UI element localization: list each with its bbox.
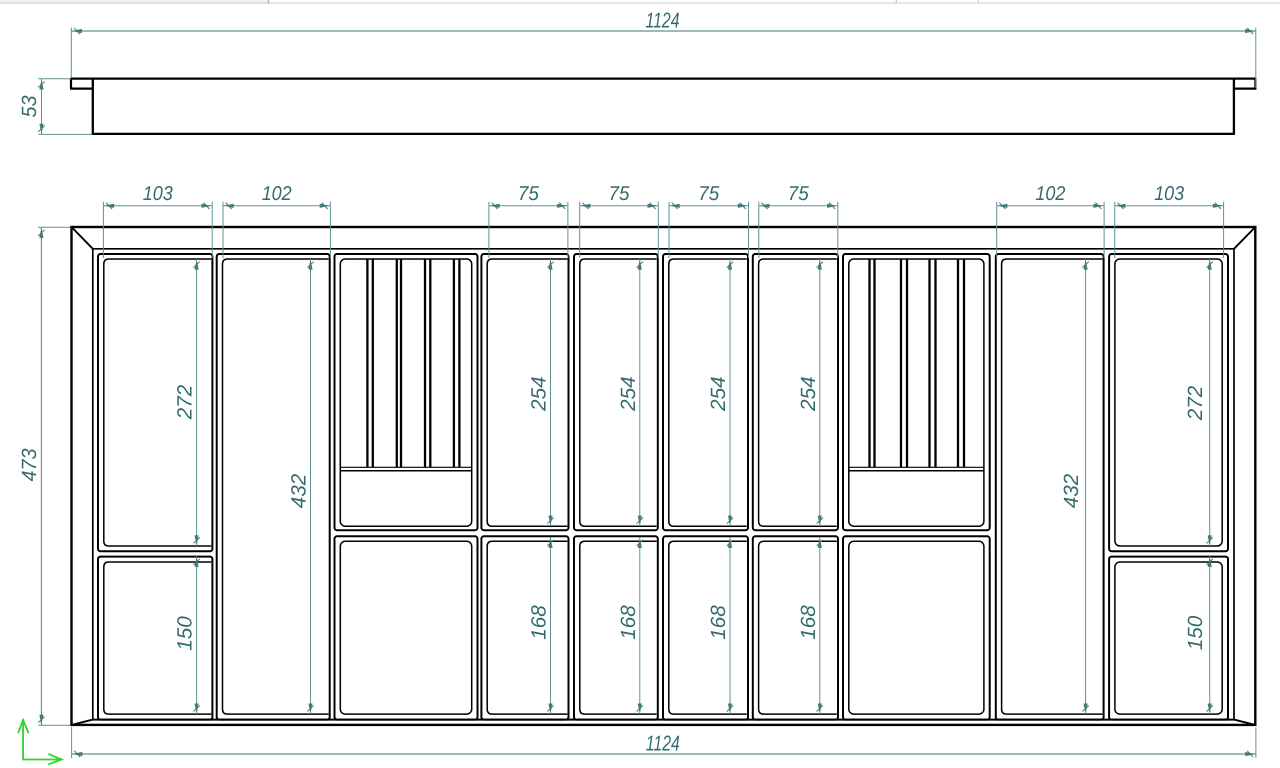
svg-text:168: 168 [617, 605, 640, 640]
svg-text:432: 432 [1060, 473, 1083, 508]
svg-text:75: 75 [518, 183, 540, 205]
svg-text:254: 254 [617, 376, 640, 412]
svg-text:75: 75 [788, 183, 810, 205]
svg-text:254: 254 [528, 376, 551, 412]
svg-text:1124: 1124 [646, 731, 680, 755]
svg-text:103: 103 [1154, 183, 1184, 205]
svg-text:168: 168 [707, 605, 730, 640]
svg-text:103: 103 [143, 183, 173, 205]
svg-text:102: 102 [262, 183, 292, 205]
svg-text:150: 150 [1184, 615, 1207, 650]
svg-text:254: 254 [707, 376, 730, 412]
svg-text:168: 168 [528, 605, 551, 640]
svg-text:1124: 1124 [646, 8, 680, 32]
svg-text:150: 150 [174, 616, 197, 651]
svg-text:75: 75 [698, 183, 720, 205]
svg-text:272: 272 [1184, 385, 1207, 421]
svg-text:102: 102 [1035, 183, 1065, 205]
svg-text:53: 53 [18, 95, 41, 118]
svg-text:272: 272 [174, 384, 197, 420]
svg-text:168: 168 [797, 605, 820, 640]
svg-text:254: 254 [797, 376, 820, 412]
svg-text:432: 432 [288, 473, 311, 508]
svg-text:473: 473 [18, 448, 41, 482]
svg-text:75: 75 [609, 183, 631, 205]
